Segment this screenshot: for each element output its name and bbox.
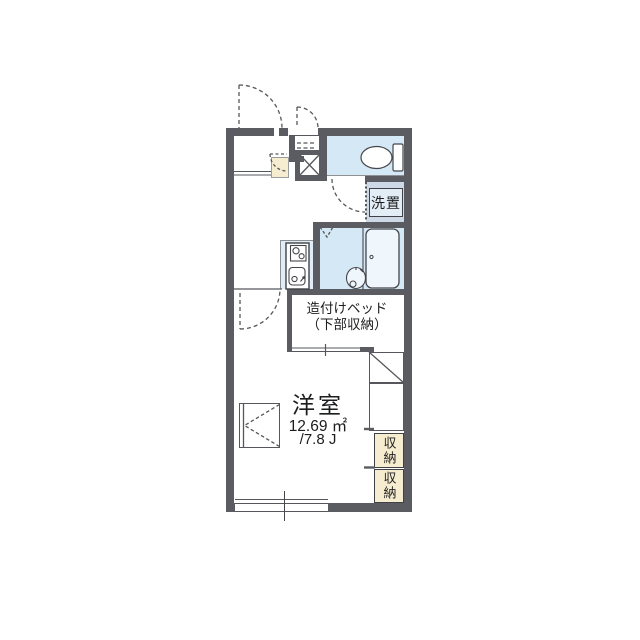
door-swing-arc <box>332 179 365 212</box>
bathtub-icon <box>366 229 399 288</box>
shoe-closet-x <box>300 155 319 175</box>
fixtures-overlay <box>0 0 640 640</box>
washbasin-icon <box>347 268 366 289</box>
door-swing-arc <box>239 85 282 128</box>
window-opening-dashes <box>245 405 280 447</box>
toilet-icon <box>361 144 403 171</box>
floorplan-canvas: 収納 収納 洗置 造付けベッド （下部収納） 洋室 12.69 ㎡ /7.8 J <box>0 0 640 640</box>
step-edge-lines <box>234 172 271 176</box>
bath-folding-door <box>320 227 333 237</box>
closet-diagonal-line <box>369 352 404 383</box>
door-swing-arc <box>240 289 280 329</box>
door-swing-arc <box>270 154 287 171</box>
door-swing-arc <box>297 107 318 128</box>
